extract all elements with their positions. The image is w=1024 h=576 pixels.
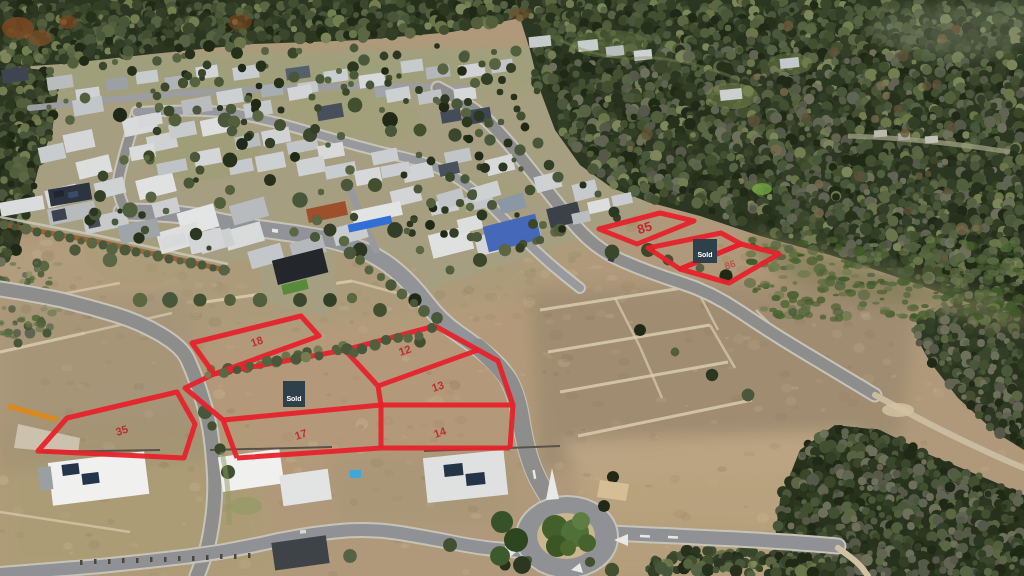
svg-text:Sold: Sold: [697, 251, 712, 258]
svg-text:Sold: Sold: [286, 395, 301, 402]
